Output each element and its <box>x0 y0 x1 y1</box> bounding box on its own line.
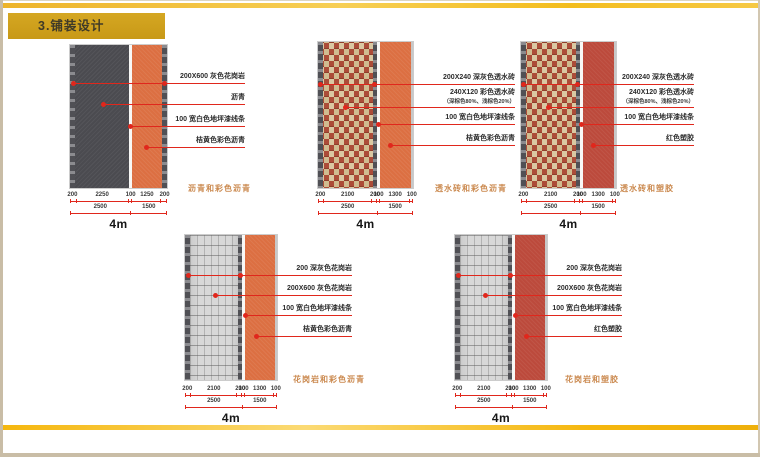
ruler-segment <box>460 393 506 397</box>
total-width-label: 4m <box>455 411 547 425</box>
dimension-values-row: 25001500 <box>455 398 547 404</box>
leader-dot <box>513 313 518 318</box>
leader-line <box>458 275 622 276</box>
leader-line <box>485 295 622 296</box>
ruler-segment <box>512 405 547 409</box>
callout-label: 100 宽白色地坪漆线条 <box>552 305 622 313</box>
left-frame-border <box>0 0 3 457</box>
leader-dot <box>456 273 461 278</box>
leader-dot <box>524 334 529 339</box>
leader-line <box>515 315 622 316</box>
dimension-values-row: 20021002001001300100 <box>455 386 547 392</box>
material-strip-granite <box>460 235 508 380</box>
leader-dot <box>508 273 513 278</box>
ruler-segment <box>514 393 543 397</box>
dimension-value: 2100 <box>460 386 508 392</box>
leader-dot <box>483 293 488 298</box>
bottom-frame-border <box>0 453 760 457</box>
dimension-value: 2500 <box>455 398 513 404</box>
paving-diagram-granite-rubber: 200 深灰色花岗岩200X600 灰色花岗岩100 宽白色地坪漆线条红色塑胶花… <box>0 0 760 457</box>
callout-label: 红色塑胶 <box>594 326 622 334</box>
diagram-caption: 花岗岩和塑胶 <box>565 374 619 385</box>
leader-line <box>526 336 622 337</box>
dimension-block: 20021002001001300100250015004m <box>455 386 547 425</box>
dimension-value: 100 <box>545 386 547 392</box>
dimension-value: 1500 <box>513 398 548 404</box>
material-callout: 200X600 灰色花岗岩 <box>485 285 622 296</box>
callout-label: 200X600 灰色花岗岩 <box>557 285 622 293</box>
bottom-accent-line <box>3 425 758 430</box>
callout-label: 200 深灰色花岗岩 <box>566 265 622 273</box>
material-callout: 红色塑胶 <box>526 326 622 337</box>
ruler-segment <box>455 405 512 409</box>
material-callout: 200 深灰色花岗岩 <box>458 265 622 276</box>
ruler-segment <box>543 393 547 397</box>
dimension-ruler <box>455 405 547 409</box>
dimension-ruler <box>455 393 547 397</box>
material-callout: 100 宽白色地坪漆线条 <box>515 305 622 316</box>
